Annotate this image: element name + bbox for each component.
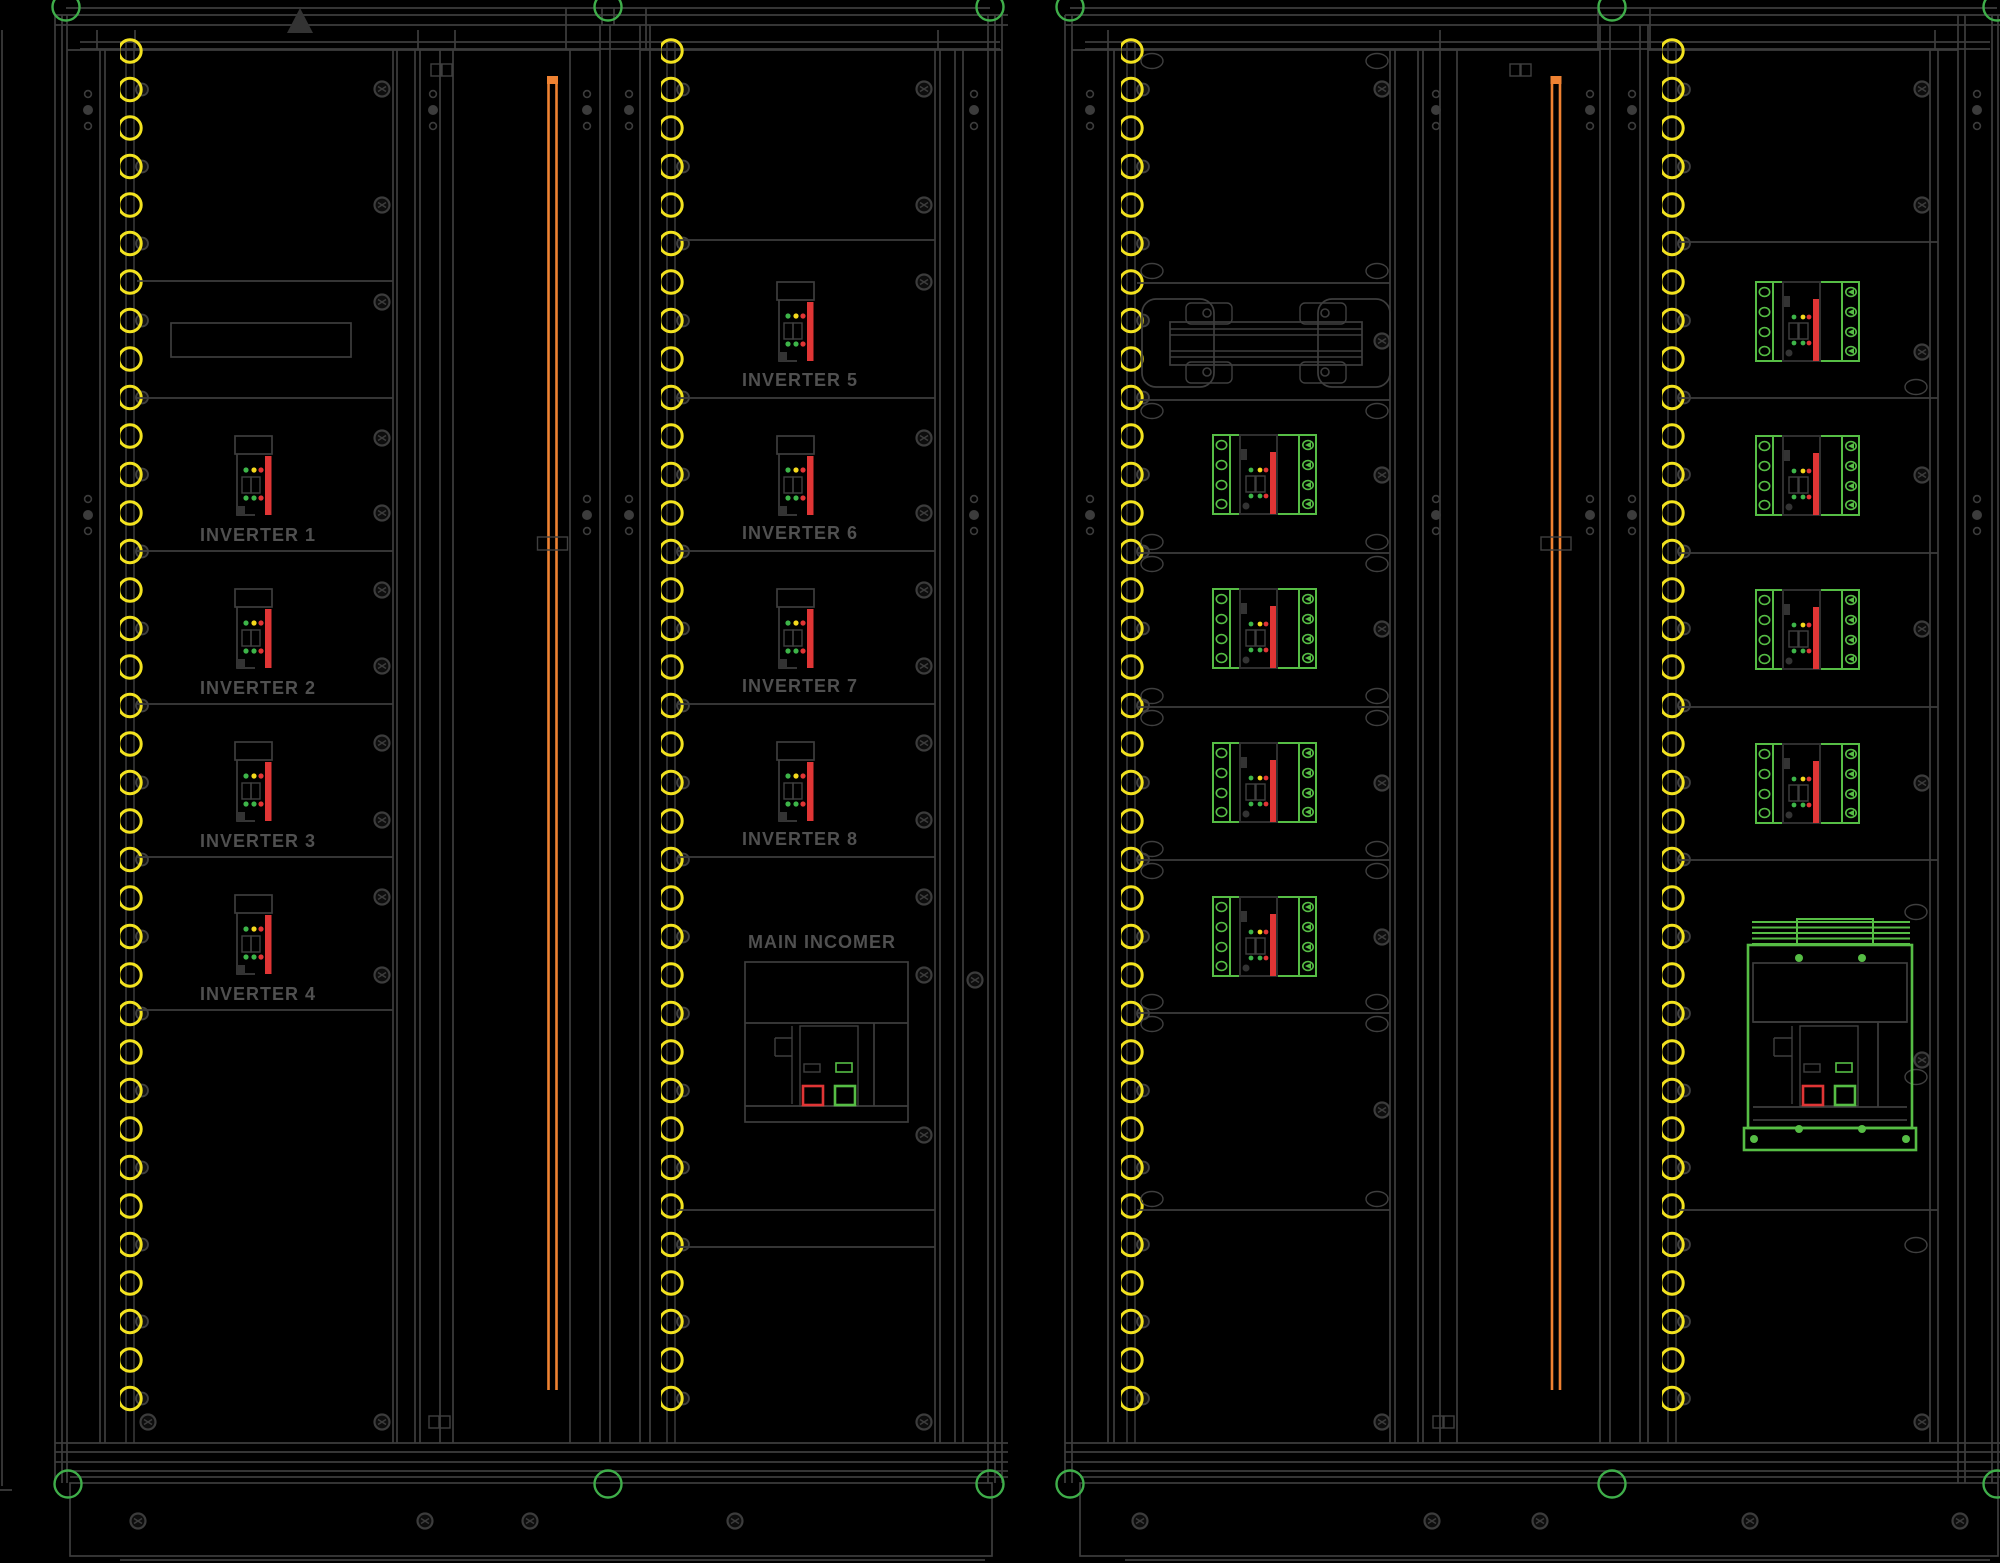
- label-inverter-8: INVERTER 8: [742, 829, 858, 849]
- screw: [418, 1514, 433, 1529]
- label-main-incomer: MAIN INCOMER: [748, 932, 896, 952]
- label-inverter-2: INVERTER 2: [200, 678, 316, 698]
- label-inverter-3: INVERTER 3: [200, 831, 316, 851]
- screw: [131, 1514, 146, 1529]
- screw: [728, 1514, 743, 1529]
- cad-canvas: INVERTER 1 INVERTER 2 INVERTER 3 INVERTE…: [0, 0, 2000, 1563]
- label-inverter-4: INVERTER 4: [200, 984, 316, 1004]
- label-inverter-7: INVERTER 7: [742, 676, 858, 696]
- panel-layout-drawing: INVERTER 1 INVERTER 2 INVERTER 3 INVERTE…: [0, 0, 2000, 1563]
- label-inverter-1: INVERTER 1: [200, 525, 316, 545]
- screw: [1133, 1514, 1148, 1529]
- cable-gland-rail: [120, 38, 154, 1412]
- background: [0, 0, 2000, 1563]
- cable-gland-rail: [661, 38, 695, 1412]
- screw: [1425, 1514, 1440, 1529]
- label-inverter-5: INVERTER 5: [742, 370, 858, 390]
- cable-gland-rail: [1662, 38, 1696, 1412]
- screw: [1743, 1514, 1758, 1529]
- screw: [523, 1514, 538, 1529]
- label-inverter-6: INVERTER 6: [742, 523, 858, 543]
- screw: [1953, 1514, 1968, 1529]
- screw: [1533, 1514, 1548, 1529]
